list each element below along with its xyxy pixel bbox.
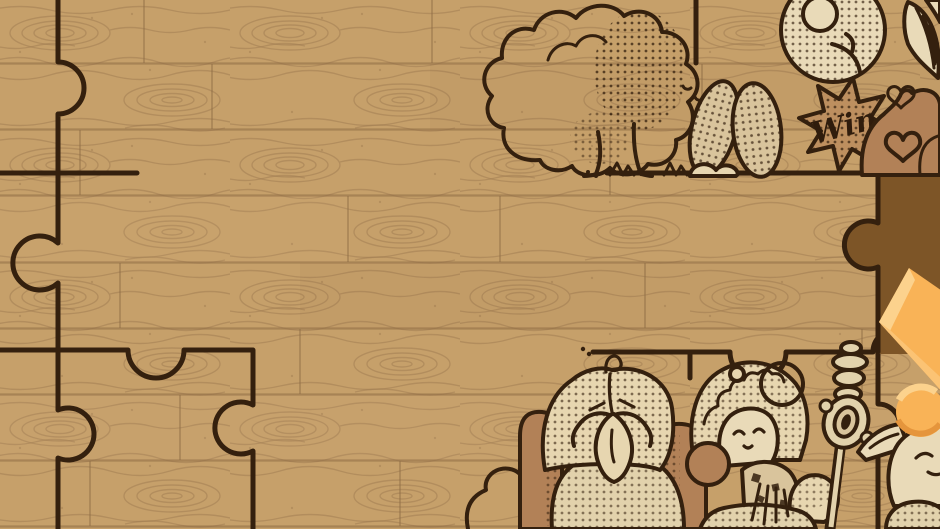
puzzle-board: Win xyxy=(0,0,940,529)
gnome-hand xyxy=(687,443,729,485)
chick-art xyxy=(781,0,885,82)
rabbit-paws xyxy=(690,164,738,176)
